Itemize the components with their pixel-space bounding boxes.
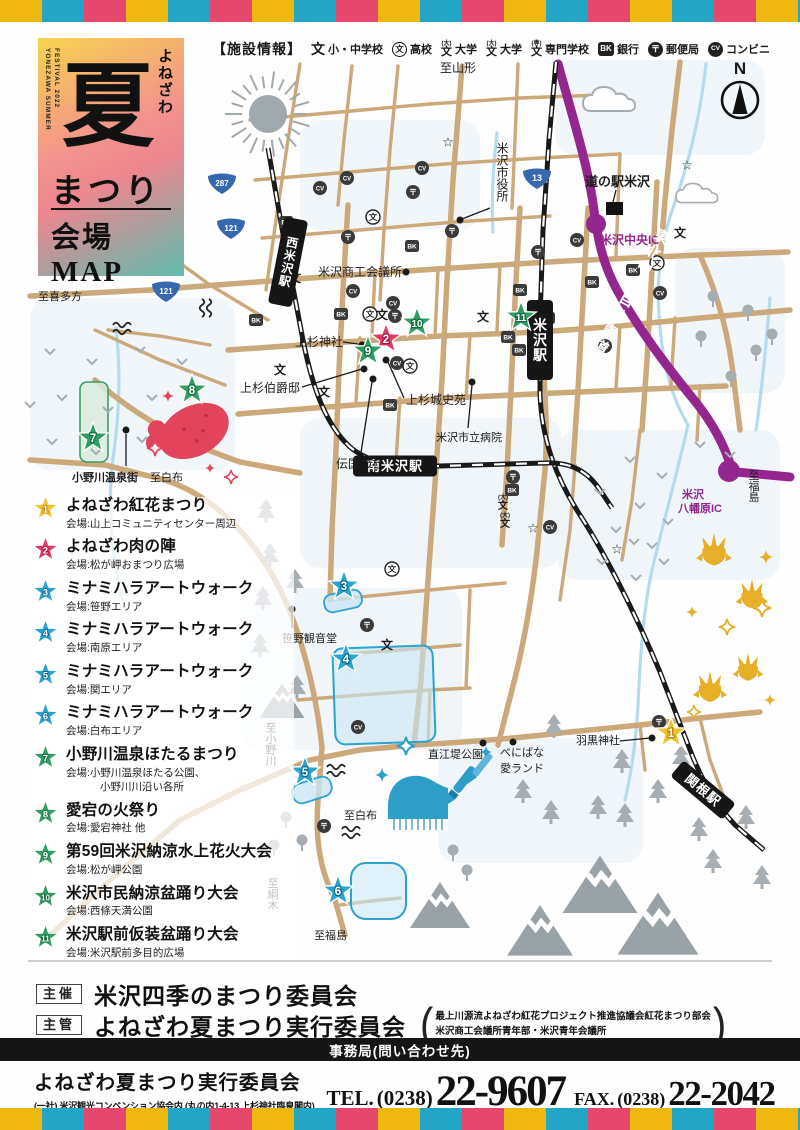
contact-row: よねざわ夏まつり実行委員会 (一社) 米沢観光コンベンション協会内 (丸の内1-… (34, 1066, 780, 1112)
svg-text:米沢駅: 米沢駅 (532, 317, 548, 363)
post-map-icon: 〒 (506, 470, 520, 484)
logo-kana-vertical: よねざわ (154, 48, 175, 116)
venue-star-icon: 8 (32, 800, 59, 827)
venue-star-icon: 1 (32, 495, 59, 522)
bk-map-icon: BK (334, 308, 348, 320)
festival-logo: YONEZAWA SUMMER FESTIVAL 2022 よねざわ 夏 まつり… (38, 38, 184, 276)
svg-text:BK: BK (251, 318, 261, 325)
svg-text:〒: 〒 (448, 227, 456, 236)
legend-label: 専門学校 (545, 41, 589, 57)
svg-text:11: 11 (516, 313, 527, 324)
svg-text:〒: 〒 (534, 248, 542, 257)
bk-map-icon: BK (585, 276, 599, 288)
svg-text:文: 文 (406, 361, 415, 371)
svg-text:BK: BK (507, 488, 517, 495)
map-label: 米沢市役所 (495, 142, 509, 202)
legend-item-vocational: (専)文 専門学校 (531, 41, 589, 58)
post-office-icon: 〒 (648, 42, 663, 57)
star-map-icon: ☆ (527, 521, 539, 536)
svg-text:〒: 〒 (391, 312, 399, 321)
event-title: 第59回米沢納涼水上花火大会 (66, 843, 272, 861)
cv-map-icon: CV (351, 720, 365, 734)
bk-map-icon: BK (512, 344, 526, 356)
festival-map-poster: BKBKBKBKBKBKBKBKBKBKBKBK〒〒〒〒〒〒〒〒〒CVCVCVC… (0, 0, 800, 1130)
event-title: 米沢市民納涼盆踊り大会 (66, 885, 239, 903)
contact-org-block: よねざわ夏まつり実行委員会 (一社) 米沢観光コンベンション協会内 (丸の内1-… (34, 1066, 315, 1112)
hs-map-icon: 文 (385, 562, 399, 576)
svg-text:4: 4 (343, 654, 350, 666)
cv-map-icon: CV (543, 520, 557, 534)
svg-text:287: 287 (215, 179, 229, 188)
legend-item-university-a: (大)文 大学 (441, 41, 477, 58)
legend-label: 小・中学校 (328, 41, 383, 57)
list-item: 7 小野川温泉ほたるまつり 会場:小野川温泉ほたる公園、小野川川沿い各所 (32, 746, 294, 794)
svg-text:CV: CV (393, 361, 401, 367)
logo-divider (51, 208, 171, 210)
svg-text:CV: CV (316, 186, 324, 192)
convenience-store-icon: CV (708, 42, 723, 57)
svg-text:3: 3 (43, 587, 48, 597)
venue-star-icon: 2 (32, 536, 59, 563)
map-label: 米沢 (681, 487, 705, 501)
svg-text:121: 121 (224, 224, 238, 233)
hs-map-icon: 文 (403, 359, 417, 373)
svg-text:3: 3 (341, 581, 347, 593)
es-map-icon: 文 (318, 384, 331, 399)
svg-text:〒: 〒 (409, 188, 417, 197)
post-map-icon: 〒 (317, 819, 331, 833)
venue-star-marker: 10 (402, 307, 432, 336)
legend-label: 大学 (455, 41, 477, 57)
map-label: べにばな (500, 746, 544, 759)
es-map-icon: 文 (674, 225, 687, 240)
bottom-stripe-border (0, 1108, 800, 1130)
svg-text:CV: CV (546, 525, 554, 531)
svg-text:〒: 〒 (363, 621, 371, 630)
cv-map-icon: CV (340, 171, 354, 185)
svg-text:CV: CV (656, 291, 664, 297)
map-label: 道の駅米沢 (585, 174, 651, 189)
event-title: よねざわ紅花まつり (66, 497, 236, 515)
bk-map-icon: BK (405, 240, 419, 252)
svg-text:〒: 〒 (655, 718, 663, 727)
venue-star-icon: 4 (32, 619, 59, 646)
svg-text:〒: 〒 (344, 233, 352, 242)
svg-text:CV: CV (418, 166, 426, 172)
post-map-icon: 〒 (388, 309, 402, 323)
map-label: 伝国の杜 (336, 456, 384, 471)
route-shield: 121 (217, 219, 245, 240)
svg-text:CV: CV (354, 725, 362, 731)
legend-label: コンビニ (726, 41, 770, 57)
footer-divider (28, 960, 772, 962)
svg-text:9: 9 (365, 346, 371, 358)
legend-label: 郵便局 (666, 41, 699, 57)
svg-text:5: 5 (302, 767, 309, 779)
event-venue: 会場:松が岬おまつり広場 (66, 558, 184, 572)
event-venue: 会場:白布エリア (66, 724, 253, 738)
facility-legend: 【施設情報】 文 小・中学校 文 高校 (大)文 大学 (大)文 大学 (専)文… (212, 39, 772, 59)
svg-text:CV: CV (573, 238, 581, 244)
logo-matsuri-text: まつり (51, 164, 162, 212)
map-label: 八幡原IC (677, 501, 722, 515)
office-name: よねざわ夏まつり実行委員会 (34, 1066, 315, 1095)
svg-text:文: 文 (477, 309, 490, 324)
bk-map-icon: BK (513, 284, 527, 296)
svg-text:BK: BK (514, 348, 524, 355)
svg-text:文: 文 (381, 637, 394, 652)
svg-text:☆: ☆ (442, 135, 454, 150)
svg-text:CV: CV (343, 176, 351, 182)
compass-icon (718, 78, 762, 122)
svg-text:BK: BK (407, 244, 417, 251)
compass-rose: N (716, 60, 764, 127)
star-map-icon: ☆ (681, 158, 693, 173)
host-name: 米沢四季のまつり委員会 (94, 977, 358, 1011)
es-map-icon: 文 (477, 309, 490, 324)
svg-text:8: 8 (43, 809, 48, 819)
list-item: 11 米沢駅前仮装盆踊り大会 会場:米沢駅前多目的広場 (32, 926, 294, 960)
list-item: 2 よねざわ肉の陣 会場:松が岬おまつり広場 (32, 538, 294, 572)
list-item: 5 ミナミハラアートウォーク 会場:関エリア (32, 663, 294, 697)
svg-text:文: 文 (366, 309, 375, 319)
cv-map-icon: CV (390, 356, 404, 370)
univ-map-icon: (大)文 (498, 493, 509, 512)
svg-text:文: 文 (388, 564, 397, 574)
map-label: 至福島 (314, 928, 347, 942)
svg-text:10: 10 (41, 893, 50, 902)
cv-map-icon: CV (570, 233, 584, 247)
post-map-icon: 〒 (652, 715, 666, 729)
es-map-icon: 文 (274, 362, 287, 377)
bk-map-icon: BK (383, 399, 397, 411)
compass-north-label: N (716, 60, 764, 77)
svg-text:2: 2 (383, 334, 389, 346)
svg-text:6: 6 (43, 712, 48, 722)
svg-text:4: 4 (43, 629, 49, 639)
logo-summer-character: 夏 (62, 60, 154, 152)
svg-text:〒: 〒 (320, 822, 328, 831)
list-item: 3 ミナミハラアートウォーク 会場:笹野エリア (32, 580, 294, 614)
host-organization-row: 主催 米沢四季のまつり委員会 (36, 977, 358, 1011)
event-title: 愛宕の火祭り (66, 802, 160, 820)
legend-label: 銀行 (617, 41, 639, 57)
top-stripe-border (0, 0, 800, 22)
star-map-icon: ☆ (442, 135, 454, 150)
venue-star-icon: 5 (32, 661, 59, 688)
cv-map-icon: CV (346, 284, 360, 298)
svg-text:(大): (大) (500, 511, 510, 519)
legend-label: 高校 (410, 41, 432, 57)
cv-map-icon: CV (653, 286, 667, 300)
tel-number: 22-9607 (436, 1073, 565, 1112)
university-icon: (大)文 (441, 41, 452, 58)
svg-text:〒: 〒 (509, 473, 517, 482)
host-badge: 主催 (36, 984, 82, 1004)
legend-item-highschool: 文 高校 (392, 41, 432, 57)
svg-text:CV: CV (389, 301, 397, 307)
svg-text:9: 9 (43, 850, 48, 860)
bank-icon: BK (598, 42, 614, 56)
svg-text:文: 文 (318, 384, 331, 399)
vocational-school-icon: (専)文 (531, 41, 542, 58)
svg-text:文: 文 (498, 499, 509, 512)
office-bar: 事務局(問い合わせ先) (0, 1038, 800, 1061)
svg-text:11: 11 (41, 934, 50, 943)
event-venue: 会場:南原エリア (66, 641, 253, 655)
venue-star-icon: 6 (32, 702, 59, 729)
svg-text:7: 7 (43, 753, 48, 763)
es-map-icon: 文 (376, 307, 389, 322)
svg-text:1: 1 (668, 728, 675, 740)
venue-star-icon: 11 (32, 924, 59, 951)
map-label: 愛ランド (500, 762, 544, 775)
post-map-icon: 〒 (406, 185, 420, 199)
map-label: 羽黒神社 (576, 733, 620, 747)
event-venue: 会場:西條天満公園 (66, 904, 239, 918)
event-title: 米沢駅前仮装盆踊り大会 (66, 926, 239, 944)
map-label: 上杉伯爵邸 (240, 380, 300, 395)
route-shield: 287 (208, 174, 236, 195)
event-title: ミナミハラアートウォーク (66, 663, 253, 681)
manage-note-line1: 最上川源流よねざわ紅花プロジェクト推進協議会紅花まつり部会 (435, 1011, 711, 1022)
legend-item-convenience: CV コンビニ (708, 41, 770, 57)
univ-map-icon: (大)文 (500, 511, 511, 530)
cv-map-icon: CV (313, 181, 327, 195)
post-map-icon: 〒 (360, 618, 374, 632)
event-title: ミナミハラアートウォーク (66, 704, 253, 722)
svg-text:13: 13 (532, 173, 542, 183)
list-item: 10 米沢市民納涼盆踊り大会 会場:西條天満公園 (32, 885, 294, 919)
svg-text:文: 文 (500, 517, 511, 530)
venue-star-icon: 7 (32, 744, 59, 771)
event-title: よねざわ肉の陣 (66, 538, 184, 556)
bk-map-icon: BK (249, 314, 263, 326)
post-map-icon: 〒 (341, 230, 355, 244)
svg-text:7: 7 (90, 433, 96, 445)
map-label: 直江堤公園 (428, 747, 483, 761)
manage-name: よねざわ夏まつり実行委員会 (94, 1008, 406, 1042)
svg-text:BK: BK (587, 280, 597, 287)
roadside-station-marker (606, 202, 623, 215)
svg-text:文: 文 (376, 307, 389, 322)
event-venue: 会場:米沢駅前多目的広場 (66, 946, 239, 960)
map-label: 米沢市立病院 (436, 430, 502, 444)
map-label: 米沢商工会議所 (318, 264, 402, 279)
map-label: 至福島 (747, 470, 760, 504)
svg-text:2: 2 (43, 546, 48, 556)
event-venue: 会場:関エリア (66, 683, 253, 697)
cv-map-icon: CV (415, 161, 429, 175)
svg-text:☆: ☆ (527, 521, 539, 536)
bk-map-icon: BK (501, 331, 515, 343)
elementary-school-icon: 文 (311, 42, 325, 56)
cv-map-icon: CV (386, 296, 400, 310)
manage-note-line2: 米沢商工会議所青年部・米沢青年会議所 (435, 1026, 606, 1037)
map-label: 至喜多方 (38, 289, 82, 303)
list-item: 8 愛宕の火祭り 会場:愛宕神社 他 (32, 802, 294, 836)
svg-text:6: 6 (335, 886, 341, 898)
event-title: ミナミハラアートウォーク (66, 621, 253, 639)
map-label: 至山形 (440, 61, 476, 75)
legend-item-elementary: 文 小・中学校 (311, 41, 383, 57)
event-title: ミナミハラアートウォーク (66, 580, 253, 598)
map-label: 至白布 (150, 470, 183, 484)
svg-text:BK: BK (503, 335, 513, 342)
event-venue: 会場:笹野エリア (66, 600, 253, 614)
hs-map-icon: 文 (366, 210, 380, 224)
svg-text:BK: BK (515, 288, 525, 295)
university-icon: (大)文 (486, 41, 497, 58)
svg-text:5: 5 (43, 670, 48, 680)
event-venue: 会場:愛宕神社 他 (66, 821, 160, 835)
legend-title: 【施設情報】 (212, 39, 302, 59)
svg-text:文: 文 (274, 362, 287, 377)
svg-text:☆: ☆ (611, 542, 623, 557)
post-map-icon: 〒 (531, 245, 545, 259)
svg-text:BK: BK (385, 403, 395, 410)
star-map-icon: ☆ (611, 542, 623, 557)
map-label: 小野川温泉街 (71, 470, 138, 484)
manage-badge: 主管 (36, 1015, 82, 1035)
list-item: 9 第59回米沢納涼水上花火大会 会場:松が岬公園 (32, 843, 294, 877)
list-item: 1 よねざわ紅花まつり 会場:山上コミュニティセンター周辺 (32, 497, 294, 531)
event-title: 小野川温泉ほたるまつり (66, 746, 239, 764)
svg-text:BK: BK (336, 312, 346, 319)
map-label: 至白布 (344, 808, 377, 822)
event-venue: 会場:山上コミュニティセンター周辺 (66, 517, 236, 531)
venue-star-icon: 10 (32, 883, 59, 910)
fax-number: 22-2042 (668, 1078, 774, 1110)
phone-numbers: TEL. (0238) 22-9607 FAX. (0238) 22-2042 (327, 1073, 775, 1112)
event-venue: 会場:松が岬公園 (66, 863, 272, 877)
ic-marker-chuo (586, 214, 606, 234)
svg-text:10: 10 (411, 319, 423, 330)
legend-item-bank: BK 銀行 (598, 41, 639, 57)
venue-star-icon: 3 (32, 578, 59, 605)
list-item: 4 ミナミハラアートウォーク 会場:南原エリア (32, 621, 294, 655)
es-map-icon: 文 (381, 637, 394, 652)
map-label: 上杉神社 (295, 334, 343, 349)
legend-item-postoffice: 〒 郵便局 (648, 41, 699, 57)
svg-text:1: 1 (43, 504, 48, 514)
svg-text:CV: CV (349, 289, 357, 295)
svg-text:☆: ☆ (681, 158, 693, 173)
event-venue: 会場:小野川温泉ほたる公園、小野川川沿い各所 (66, 766, 239, 794)
svg-text:文: 文 (674, 225, 687, 240)
svg-text:8: 8 (189, 385, 196, 397)
venue-map-title: 会場MAP (51, 214, 184, 289)
high-school-icon: 文 (392, 42, 407, 57)
hs-map-icon: 文 (363, 307, 377, 321)
ic-marker-hachimanpara (718, 460, 740, 482)
station-label: 関根駅 (670, 760, 736, 820)
map-label: 上杉城史苑 (406, 393, 466, 407)
svg-text:文: 文 (369, 212, 378, 222)
legend-item-university-b: (大)文 大学 (486, 41, 522, 58)
legend-label: 大学 (500, 41, 522, 57)
post-map-icon: 〒 (445, 224, 459, 238)
event-list: 1 よねざわ紅花まつり 会場:山上コミュニティセンター周辺 2 よねざわ肉の陣 … (32, 497, 294, 968)
venue-star-icon: 9 (32, 841, 59, 868)
list-item: 6 ミナミハラアートウォーク 会場:白布エリア (32, 704, 294, 738)
svg-text:(大): (大) (498, 493, 508, 501)
